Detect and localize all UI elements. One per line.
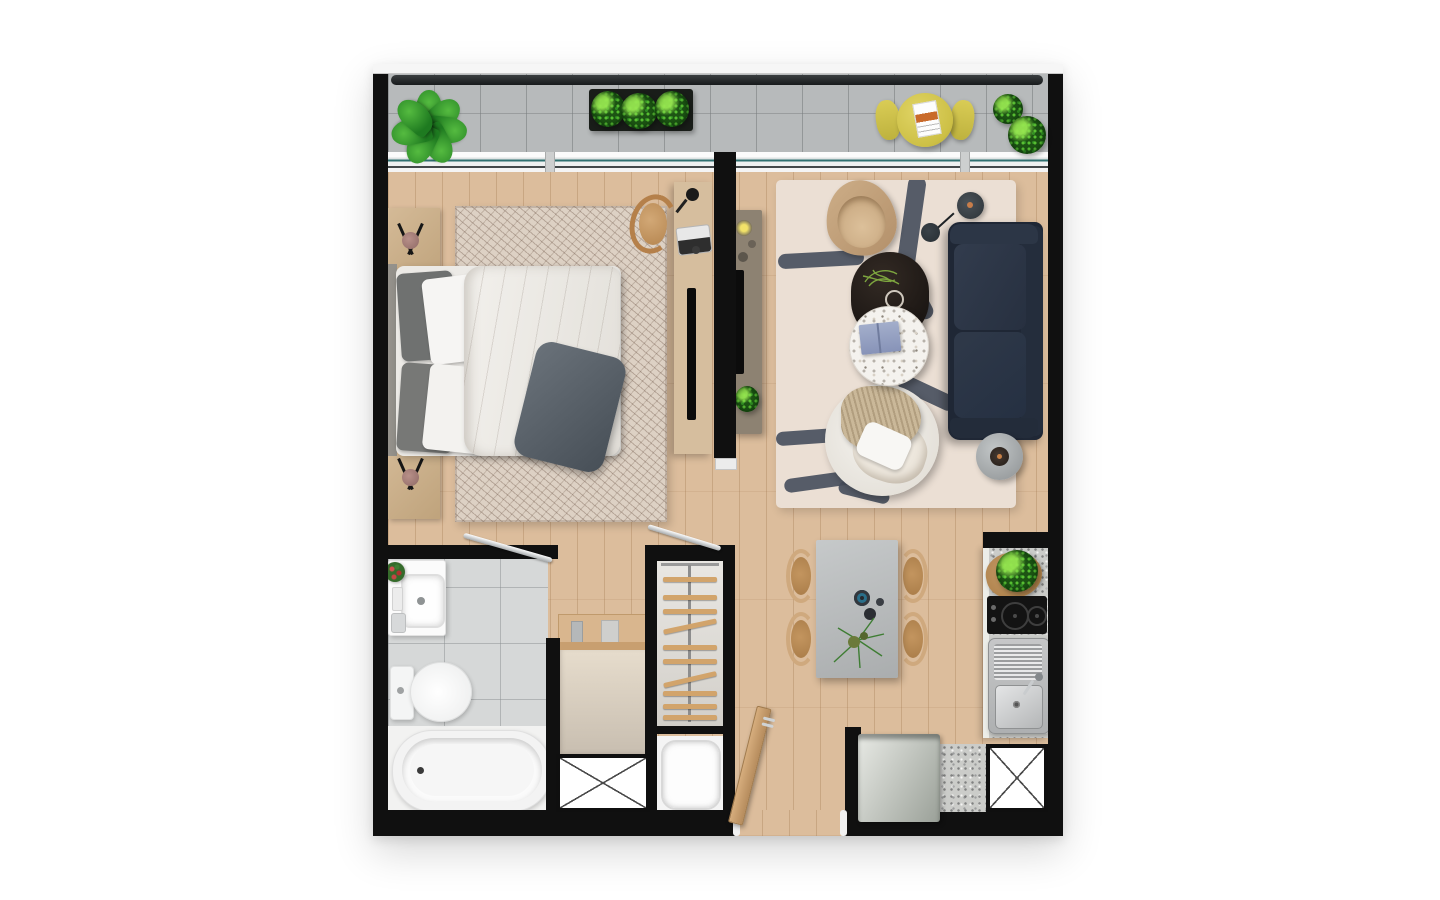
- shelf-item: [601, 620, 619, 644]
- counter-return: [934, 744, 986, 812]
- speaker-dot: [692, 246, 700, 254]
- balcony-parapet: [373, 64, 1063, 74]
- shaft-duct-box: [986, 744, 1048, 812]
- cabinet-top-edge: [558, 642, 648, 650]
- wall-closet-bottom: [645, 726, 735, 734]
- plate: [854, 590, 870, 606]
- flower-pot: [385, 562, 405, 582]
- burner: [1001, 602, 1029, 630]
- floor-plan-canvas: [0, 0, 1440, 900]
- tub-drain: [417, 767, 424, 774]
- sofa-cushion: [954, 244, 1026, 330]
- wall-closet-right: [723, 561, 735, 812]
- book: [859, 321, 902, 355]
- hanger: [663, 704, 717, 709]
- bush-icon: [621, 93, 657, 129]
- chair-seat: [639, 203, 667, 245]
- sofa: [948, 222, 1043, 440]
- bedroom-tv: [687, 288, 696, 420]
- desk-lamp-arm: [675, 199, 687, 213]
- dining-table: [816, 540, 898, 678]
- hanger: [663, 691, 717, 696]
- wall-kitchen-stub: [983, 532, 1063, 548]
- magazine: [912, 100, 942, 138]
- toilet-bowl: [410, 662, 472, 722]
- round-side-table: [976, 433, 1023, 480]
- armchair: [825, 384, 939, 496]
- washer-drum: [661, 740, 721, 810]
- bush-icon: [591, 91, 625, 127]
- faucet-icon: [1035, 673, 1043, 681]
- sink-drain: [1013, 701, 1020, 708]
- floor-lamp-base: [921, 223, 940, 242]
- balcony-table: [897, 93, 953, 147]
- flush-button: [397, 687, 404, 694]
- potted-bush: [1008, 116, 1046, 154]
- console-decor-dot: [738, 252, 748, 262]
- wall-left: [373, 70, 388, 836]
- knob: [991, 605, 996, 610]
- terrazzo-side-table: [849, 306, 929, 386]
- kitchen-sink: [988, 638, 1050, 734]
- bush-icon: [655, 91, 689, 127]
- bathtub: [392, 730, 552, 812]
- console-plant: [735, 386, 759, 412]
- door-jamb: [840, 810, 847, 836]
- tub-floor: [410, 744, 534, 796]
- vase: [402, 469, 419, 486]
- dining-chair: [898, 549, 928, 603]
- chair-seat: [791, 557, 811, 595]
- console-decor-dot: [748, 240, 756, 248]
- closet-rod: [688, 565, 691, 722]
- centerpiece-plant-icon: [830, 612, 888, 670]
- window-mullion: [545, 152, 555, 172]
- shelf-item: [571, 621, 583, 643]
- kitchen-plant: [996, 550, 1038, 592]
- hall-cabinet: [558, 648, 648, 754]
- washing-machine: [657, 736, 723, 812]
- wall-partition-cap: [715, 458, 737, 470]
- cooktop: [987, 596, 1047, 634]
- closet-interior: [657, 561, 723, 726]
- lounge-chair: [821, 175, 901, 260]
- planter-box: [589, 89, 693, 131]
- hanger: [663, 577, 717, 582]
- sink-basin: [995, 685, 1043, 729]
- chair-seat: [903, 557, 923, 595]
- lamp-bulb-dot: [967, 202, 973, 208]
- bedroom-desk: [674, 182, 712, 454]
- fridge: [858, 734, 940, 822]
- chair-seat: [791, 620, 811, 658]
- wall-closet-top: [645, 545, 735, 561]
- wall-bottom-left: [373, 810, 735, 836]
- floor-lamp-shade: [957, 192, 984, 219]
- accessory: [391, 613, 406, 633]
- vase: [402, 232, 419, 249]
- burner: [1027, 606, 1047, 626]
- dining-chair: [786, 612, 816, 666]
- dining-chair: [786, 549, 816, 603]
- shaft-duct-box: [556, 754, 650, 812]
- soap-tray: [392, 587, 403, 611]
- wall-right: [1048, 70, 1063, 836]
- media-console: [732, 210, 762, 434]
- sofa-cushion: [954, 332, 1026, 418]
- window-mullion: [960, 152, 970, 172]
- entry-threshold: [735, 810, 843, 836]
- wall-partition: [714, 152, 736, 458]
- console-lamp: [736, 220, 752, 236]
- hanger: [663, 715, 717, 720]
- sofa-armrest: [950, 224, 1038, 244]
- balcony-railing: [391, 75, 1043, 85]
- knob: [991, 617, 996, 622]
- monstera-plant-icon: [384, 88, 464, 168]
- hanger: [663, 645, 717, 650]
- desk-lamp-icon: [686, 188, 699, 201]
- hanger: [663, 609, 717, 614]
- faucet-icon: [417, 597, 425, 605]
- plate: [876, 598, 884, 606]
- desk-chair: [630, 194, 676, 254]
- chair-seat: [903, 620, 923, 658]
- dining-chair: [898, 612, 928, 666]
- hanger: [663, 595, 717, 600]
- hanger: [663, 659, 717, 664]
